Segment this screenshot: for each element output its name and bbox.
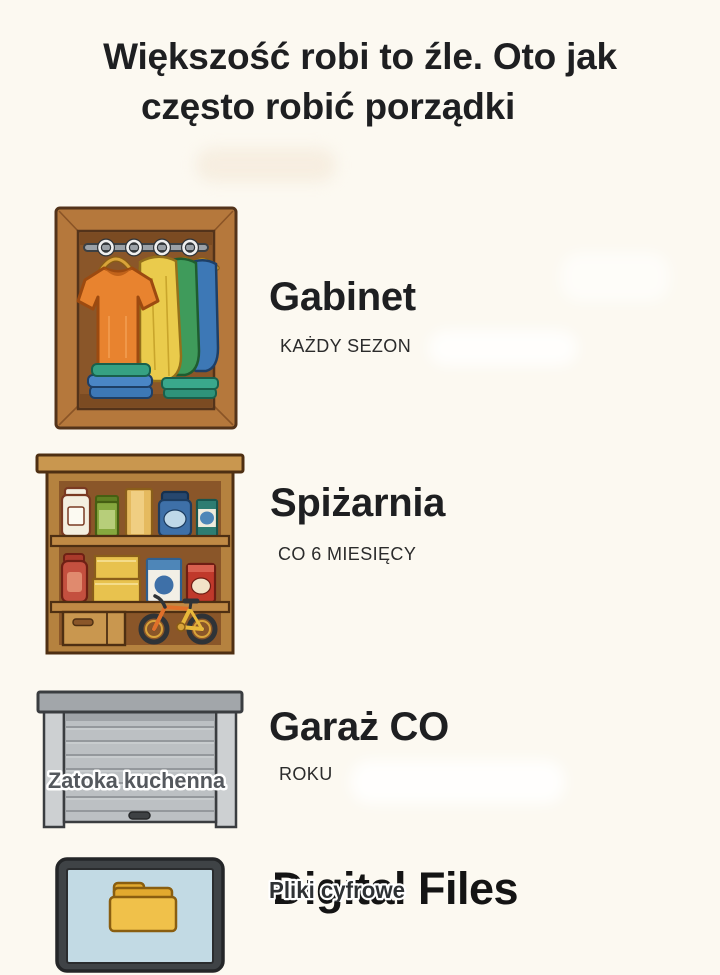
page-title-line2: często robić porządki [0, 82, 720, 132]
page-title: Większość robi to źle. Oto jak często ro… [0, 32, 720, 132]
folded-clothes-left [88, 364, 152, 398]
folder-icon [110, 883, 176, 931]
watermark-smudge [560, 252, 670, 302]
garage-door-handle [129, 812, 150, 819]
computer-monitor-with-folder-icon [54, 855, 226, 975]
wardrobe-with-hanging-shirts-icon [52, 198, 240, 434]
garage-heading: Garaż CO [269, 707, 449, 747]
pantry-shelf-board [51, 602, 229, 612]
closet-frequency: KAŻDY SEZON [280, 337, 411, 355]
closet-heading: Gabinet [269, 277, 416, 317]
garage-roller-door-icon: Zatoka kuchenna [36, 688, 244, 832]
watermark-smudge [350, 760, 565, 804]
cardboard-box [63, 612, 125, 645]
digital-files-overlay-text: Pliki cyfrowe [269, 877, 405, 902]
pantry-heading: Spiżarnia [270, 483, 445, 523]
digital-files-overlay-heading: Pliki cyfrowe [266, 872, 426, 902]
page-title-line1: Większość robi to źle. Oto jak [0, 32, 720, 82]
garage-frequency: ROKU [279, 765, 333, 783]
pantry-shelf-board [51, 536, 229, 546]
infographic-page: { "page": { "background_color": "#FCF9F1… [0, 0, 720, 900]
watermark-smudge [428, 330, 578, 366]
garage-lintel [38, 692, 242, 712]
pantry-top-board [37, 455, 243, 472]
pantry-frequency: CO 6 MIESIĘCY [278, 545, 416, 563]
watermark-smudge [196, 148, 336, 182]
pantry-shelf-with-jars-box-and-bicycle-icon [34, 452, 246, 660]
folded-clothes-right [162, 378, 218, 398]
garage-overlay-label: Zatoka kuchenna [48, 768, 225, 793]
